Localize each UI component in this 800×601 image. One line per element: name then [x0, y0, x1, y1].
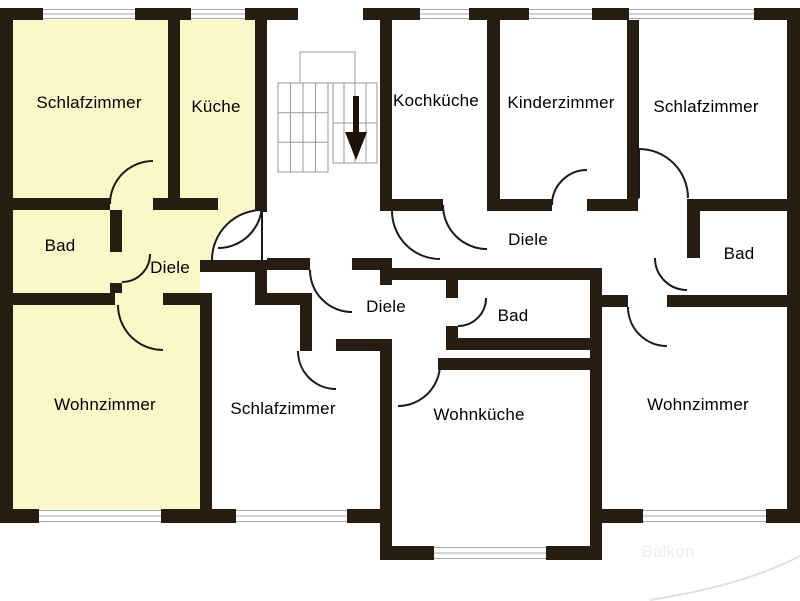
balcony-arc: [650, 556, 800, 600]
room-label-bad-right: Bad: [724, 244, 755, 264]
stair-treads: [278, 52, 377, 172]
room-label-kueche: Küche: [191, 97, 240, 117]
room-label-wohnzimmer-left: Wohnzimmer: [54, 395, 156, 415]
room-label-wohnzimmer-right: Wohnzimmer: [647, 395, 749, 415]
stairs-down-arrow-icon: [345, 96, 367, 160]
room-label-bad-middle: Bad: [498, 306, 529, 326]
floor-plan: Schlafzimmer Küche Bad Diele Wohnzimmer …: [0, 0, 800, 601]
niche-patch: [200, 272, 255, 293]
room-label-diele-left: Diele: [150, 258, 190, 278]
room-label-schlafzimmer-left: Schlafzimmer: [36, 93, 141, 113]
room-label-schlafzimmer-middle: Schlafzimmer: [230, 399, 335, 419]
balcony-outline: [650, 556, 800, 600]
room-label-kochkueche: Kochküche: [393, 91, 479, 111]
room-label-schlafzimmer-right: Schlafzimmer: [653, 97, 758, 117]
staircase: [278, 52, 377, 172]
room-label-diele-middle: Diele: [366, 297, 406, 317]
room-label-bad-left: Bad: [45, 236, 76, 256]
room-label-wohnkueche: Wohnküche: [433, 405, 524, 425]
room-label-diele-right: Diele: [508, 230, 548, 250]
room-label-kinderzimmer: Kinderzimmer: [507, 93, 614, 113]
room-label-balkon: Balkon: [641, 542, 694, 562]
